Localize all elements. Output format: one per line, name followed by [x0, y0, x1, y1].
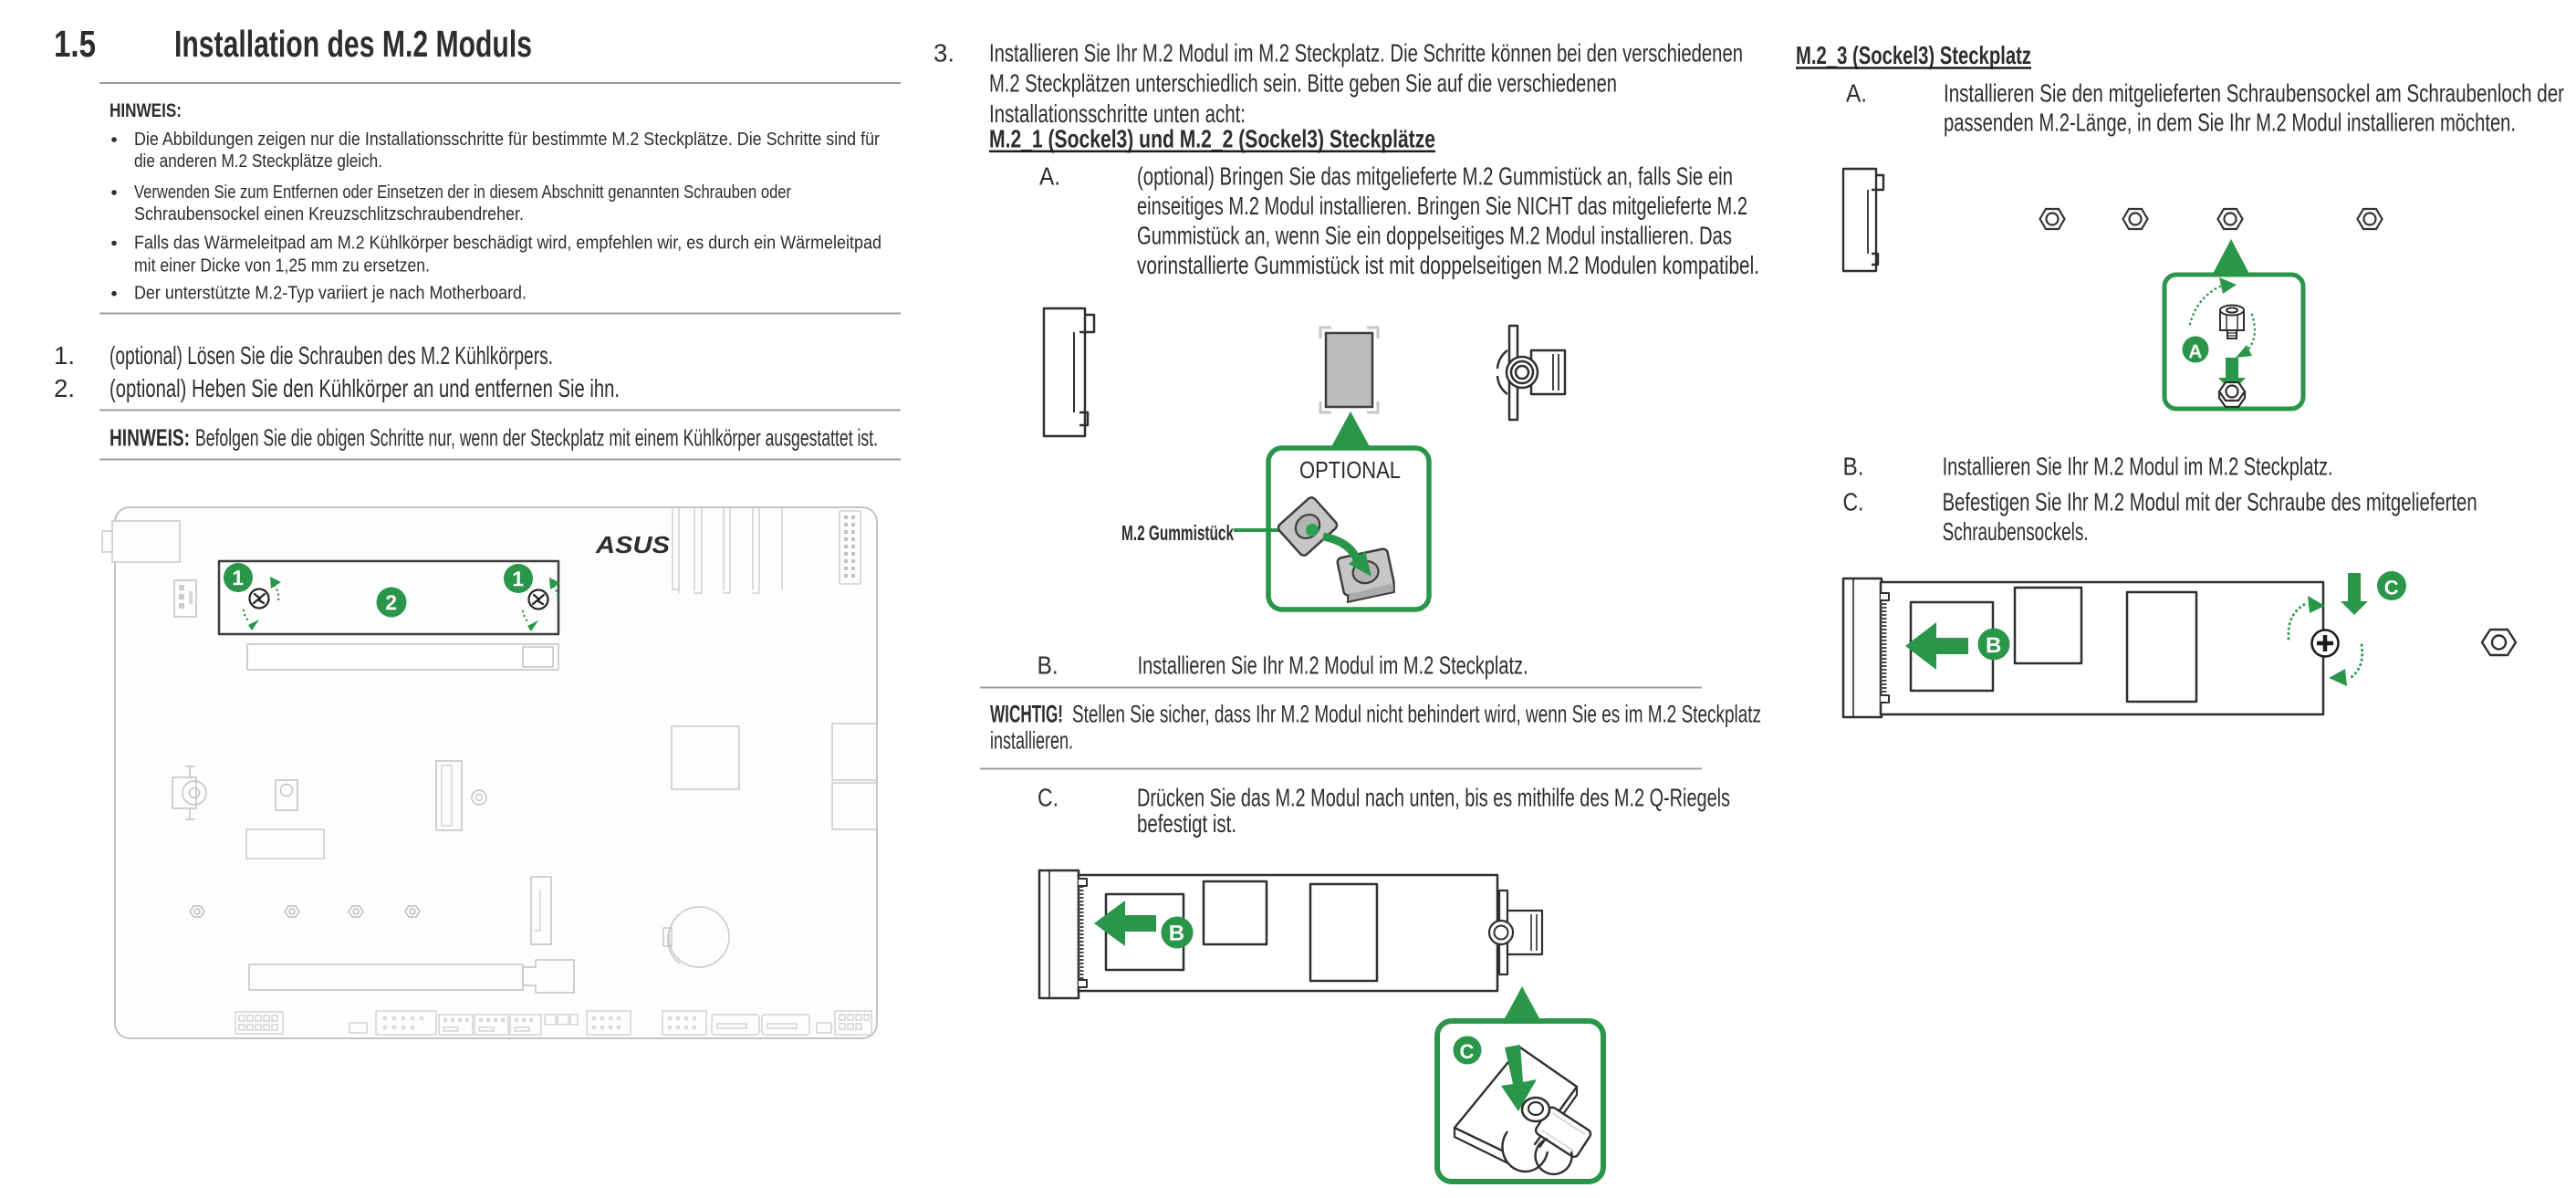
svg-text:ASUS: ASUS — [595, 531, 671, 558]
svg-text:Die Abbildungen zeigen nur die: Die Abbildungen zeigen nur die Installat… — [134, 130, 880, 150]
svg-text:Gummistück an, wenn Sie ein do: Gummistück an, wenn Sie ein doppelseitig… — [1137, 221, 1732, 249]
svg-text:B.: B. — [1843, 453, 1864, 481]
svg-text:Der unterstützte M.2-Typ varii: Der unterstützte M.2-Typ variiert je nac… — [134, 284, 527, 304]
svg-text:Installation des M.2 Moduls: Installation des M.2 Moduls — [174, 23, 532, 65]
svg-text:Falls das Wärmeleitpad am M.2: Falls das Wärmeleitpad am M.2 Kühlkörper… — [134, 234, 881, 254]
svg-text:A.: A. — [1846, 78, 1867, 107]
svg-text:(optional) Bringen Sie das mit: (optional) Bringen Sie das mitgelieferte… — [1137, 162, 1733, 191]
svg-text:HINWEIS:: HINWEIS: — [110, 100, 182, 121]
svg-text:3.: 3. — [933, 39, 954, 68]
svg-text:1.: 1. — [54, 341, 75, 370]
svg-text:vorinstallierte Gummistück ist: vorinstallierte Gummistück ist mit doppe… — [1137, 251, 1759, 279]
svg-text:M.2 Steckplätzen unterschiedli: M.2 Steckplätzen unterschiedlich sein. B… — [989, 69, 1617, 98]
svg-text:Befestigen Sie Ihr M.2 Modul m: Befestigen Sie Ihr M.2 Modul mit der Sch… — [1943, 488, 2477, 516]
svg-text:Befolgen Sie die obigen Schrit: Befolgen Sie die obigen Schritte nur, we… — [195, 424, 878, 452]
svg-text:2: 2 — [385, 590, 397, 614]
svg-text:(optional) Heben Sie den Kühlk: (optional) Heben Sie den Kühlkörper an u… — [110, 374, 620, 402]
svg-text:mit einer Dicke von 1,25 mm zu: mit einer Dicke von 1,25 mm zu ersetzen. — [134, 256, 430, 276]
svg-text:Verwenden Sie zum Entfernen od: Verwenden Sie zum Entfernen oder Einsetz… — [134, 182, 791, 203]
svg-text:1: 1 — [232, 566, 244, 589]
svg-text:C.: C. — [1843, 488, 1864, 516]
svg-text:Installieren Sie Ihr M.2 Modul: Installieren Sie Ihr M.2 Modul im M.2 St… — [1138, 651, 1528, 680]
svg-text:2.: 2. — [54, 374, 75, 402]
svg-text:befestigt ist.: befestigt ist. — [1137, 809, 1236, 838]
svg-text:Installieren Sie Ihr M.2 Modul: Installieren Sie Ihr M.2 Modul im M.2 St… — [1943, 453, 2333, 481]
svg-text:B: B — [1986, 633, 2001, 658]
svg-text:Installationsschritte unten ac: Installationsschritte unten acht: — [989, 99, 1246, 128]
svg-text:Schraubensockel einen Kreuzsch: Schraubensockel einen Kreuzschlitzschrau… — [134, 204, 524, 224]
svg-text:B: B — [1169, 922, 1184, 946]
svg-text:die anderen M.2 Steckplätze gl: die anderen M.2 Steckplätze gleich. — [134, 151, 382, 172]
svg-text:C.: C. — [1038, 783, 1059, 811]
svg-text:Drücken Sie das M.2 Modul nach: Drücken Sie das M.2 Modul nach unten, bi… — [1137, 783, 1730, 811]
svg-text:A: A — [2188, 341, 2202, 362]
svg-text:(optional) Lösen Sie die Schra: (optional) Lösen Sie die Schrauben des M… — [110, 341, 553, 370]
svg-text:WICHTIG!: WICHTIG! — [990, 701, 1063, 728]
svg-text:einseitiges M.2 Modul installi: einseitiges M.2 Modul installieren. Brin… — [1137, 192, 1747, 220]
svg-text:C: C — [2384, 576, 2399, 599]
svg-text:Installieren Sie Ihr M.2 Modul: Installieren Sie Ihr M.2 Modul im M.2 St… — [989, 39, 1743, 68]
svg-text:1.5: 1.5 — [54, 23, 96, 65]
svg-text:OPTIONAL: OPTIONAL — [1299, 456, 1401, 484]
svg-text:C: C — [1459, 1040, 1474, 1063]
svg-text:M.2_1 (Sockel3) und M.2_2 (Soc: M.2_1 (Sockel3) und M.2_2 (Sockel3) Stec… — [989, 124, 1435, 152]
svg-text:M.2_3 (Sockel3) Steckplatz: M.2_3 (Sockel3) Steckplatz — [1796, 41, 2031, 69]
svg-text:HINWEIS:: HINWEIS: — [110, 424, 190, 452]
svg-text:Installieren Sie den mitgelief: Installieren Sie den mitgelieferten Schr… — [1944, 78, 2564, 107]
svg-text:passenden M.2-Länge, in dem Si: passenden M.2-Länge, in dem Sie Ihr M.2 … — [1944, 109, 2516, 137]
svg-text:M.2 Gummistück: M.2 Gummistück — [1121, 521, 1234, 545]
svg-text:B.: B. — [1038, 651, 1059, 680]
svg-text:Schraubensockels.: Schraubensockels. — [1943, 517, 2089, 546]
svg-text:1: 1 — [512, 567, 524, 590]
svg-text:installieren.: installieren. — [990, 726, 1073, 754]
svg-text:A.: A. — [1039, 162, 1060, 191]
svg-text:Stellen Sie sicher, dass Ihr M: Stellen Sie sicher, dass Ihr M.2 Modul n… — [1072, 701, 1761, 728]
